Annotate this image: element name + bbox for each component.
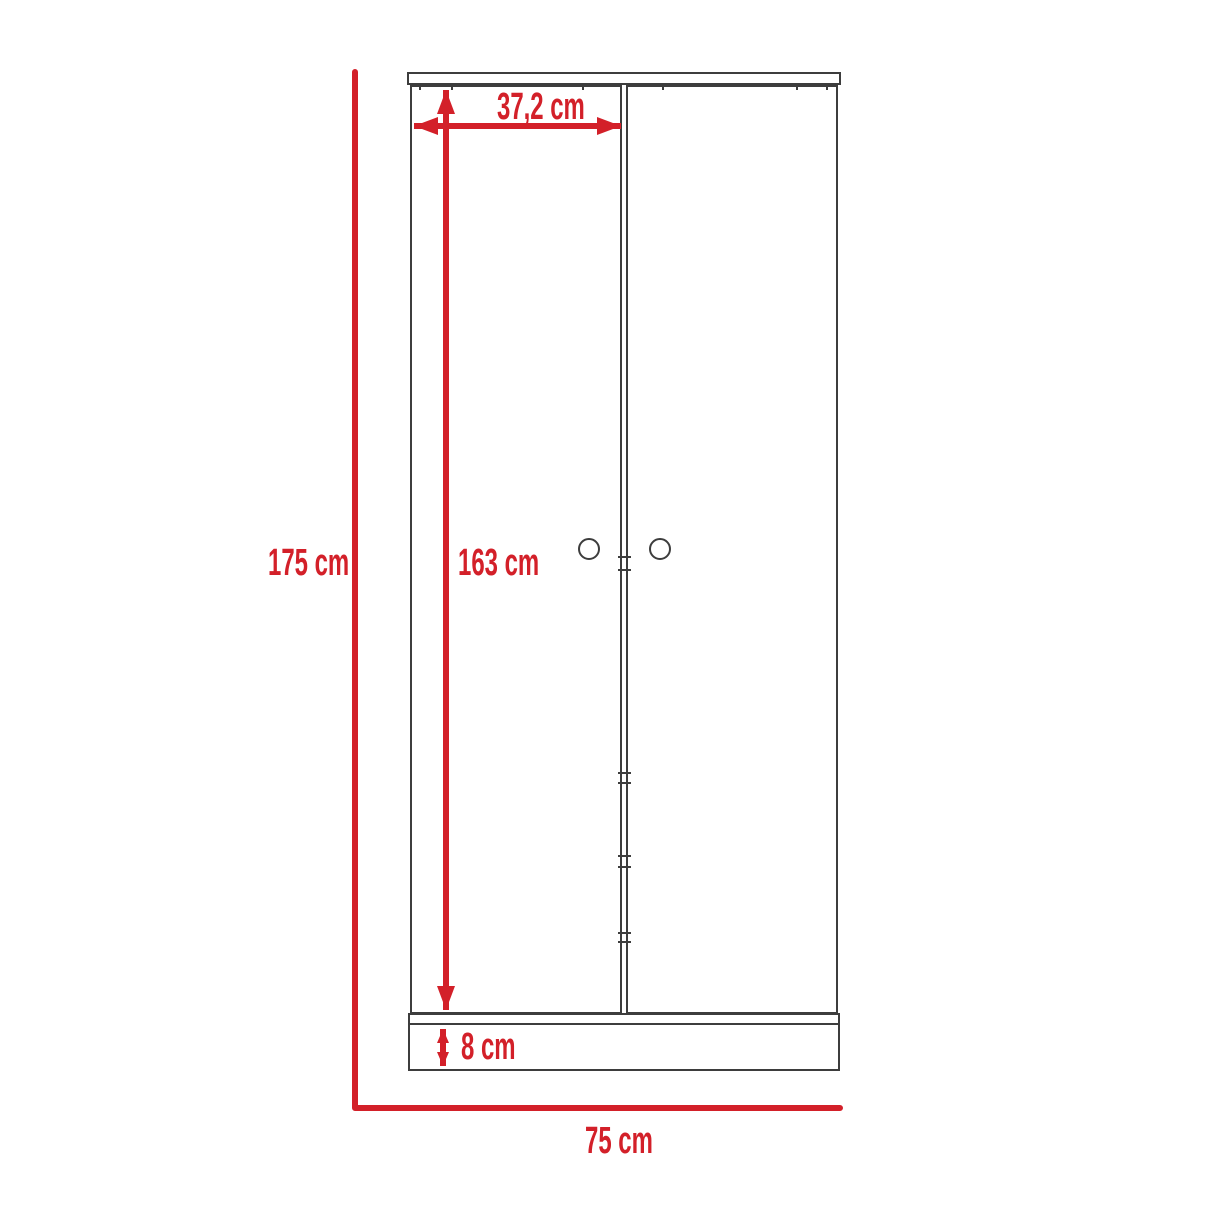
door-height-label: 163 cm xyxy=(458,544,539,582)
wardrobe-dimension-drawing xyxy=(0,0,1214,1214)
door-handle-left xyxy=(579,539,599,559)
total-width-label: 75 cm xyxy=(585,1122,653,1160)
total-height-label: 175 cm xyxy=(268,544,349,582)
door-width-label: 37,2 cm xyxy=(497,88,585,126)
base-height-label: 8 cm xyxy=(461,1028,516,1066)
door-handle-right xyxy=(650,539,670,559)
wardrobe-right-door xyxy=(627,86,837,1013)
wardrobe-top-panel xyxy=(408,73,840,84)
door-gap-joint-ticks xyxy=(618,557,631,942)
total-height-width-bracket xyxy=(355,72,840,1108)
diagram-canvas: 175 cm 37,2 cm 163 cm 8 cm 75 cm xyxy=(0,0,1214,1214)
dimension-lines xyxy=(355,72,840,1108)
wardrobe-bottom-edge xyxy=(409,1014,839,1024)
